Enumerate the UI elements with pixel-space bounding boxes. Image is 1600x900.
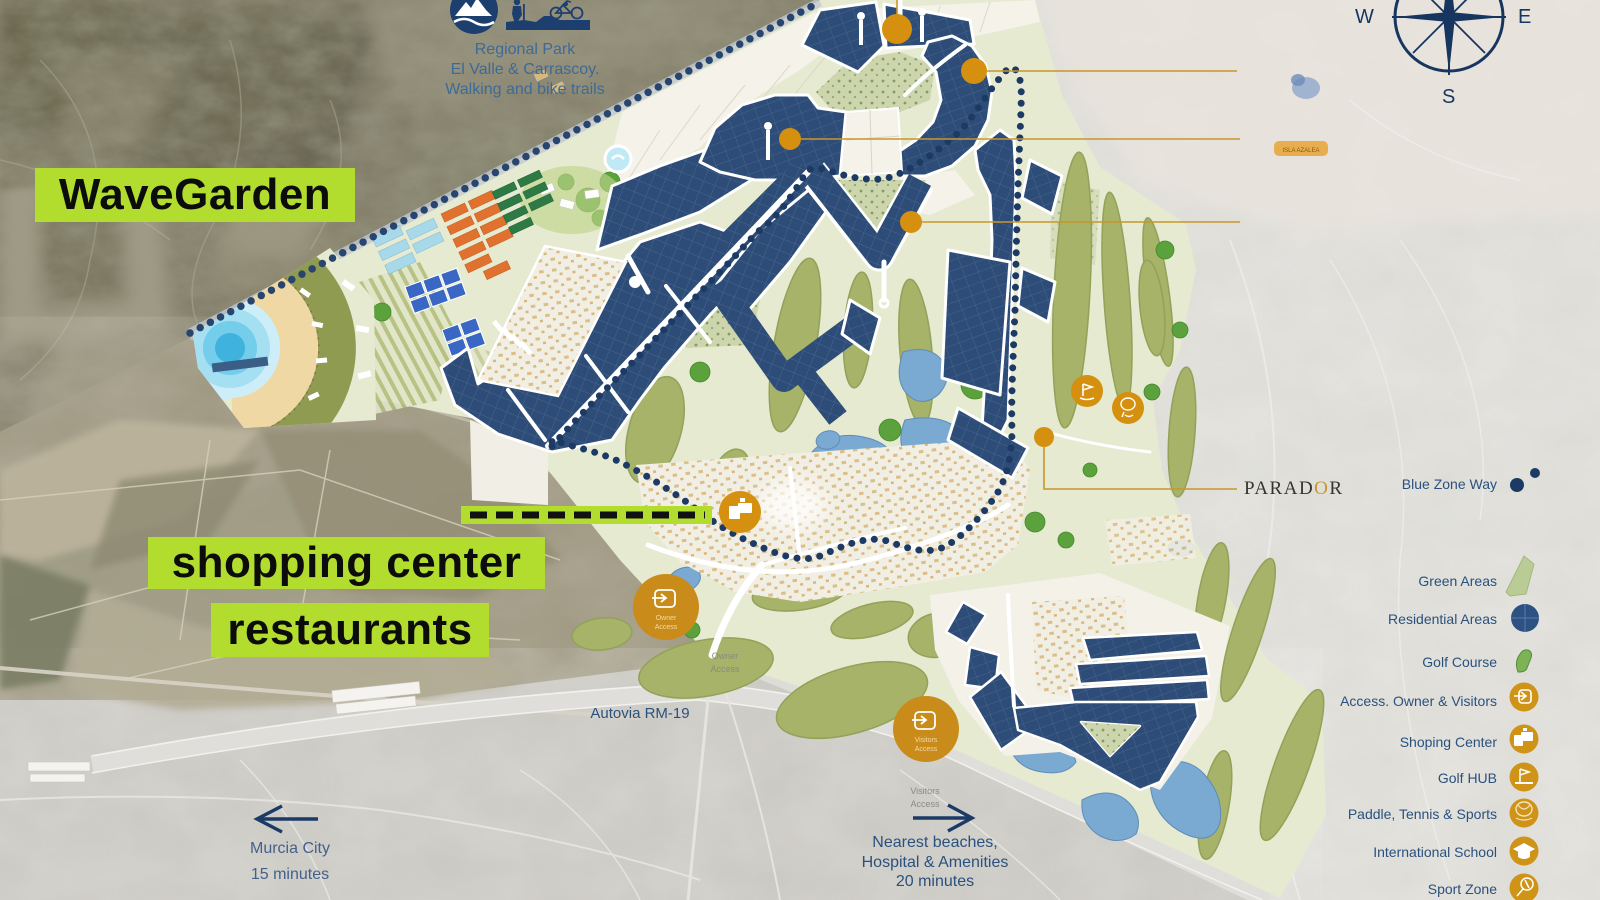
- svg-text:Owner: Owner: [656, 615, 677, 622]
- svg-text:Access: Access: [655, 624, 678, 631]
- svg-text:ISLA AZALEA: ISLA AZALEA: [1282, 148, 1319, 154]
- svg-text:Access: Access: [915, 746, 938, 753]
- svg-text:Visitors: Visitors: [915, 737, 938, 744]
